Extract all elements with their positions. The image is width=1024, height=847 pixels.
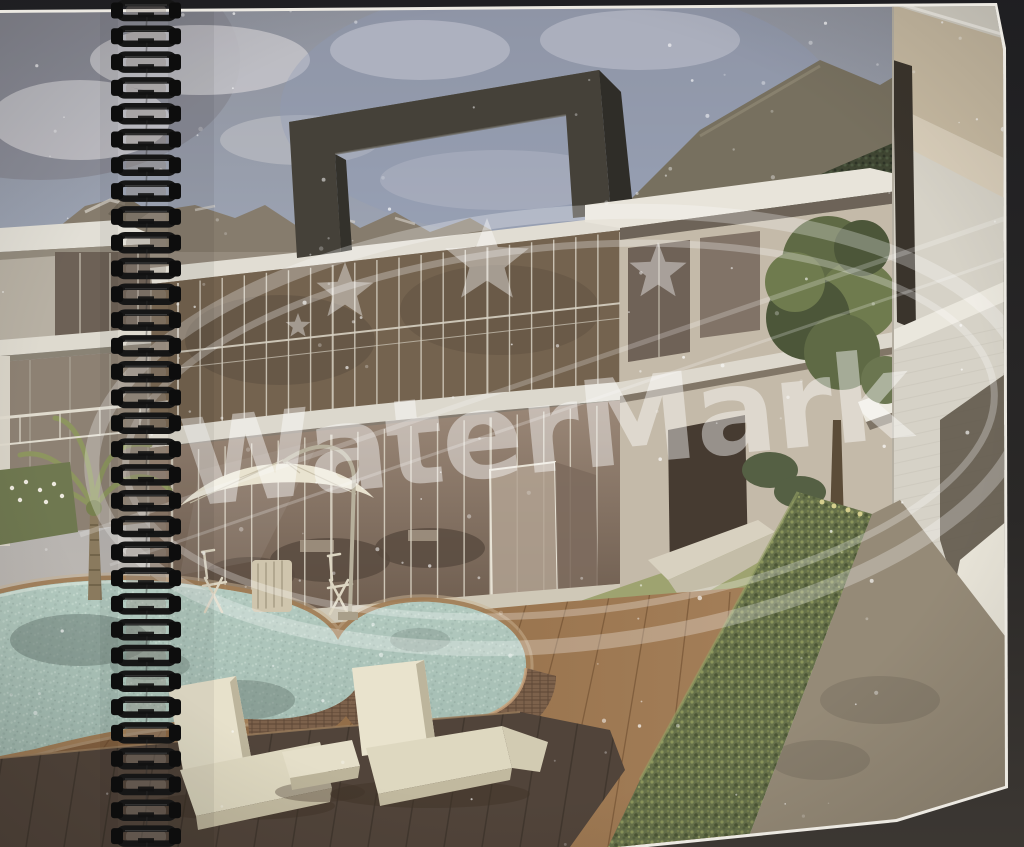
binding-coil: [111, 828, 181, 847]
booklet-photo: WaterMark: [0, 0, 1024, 847]
photo-of-booklet: WaterMark: [0, 0, 1024, 847]
